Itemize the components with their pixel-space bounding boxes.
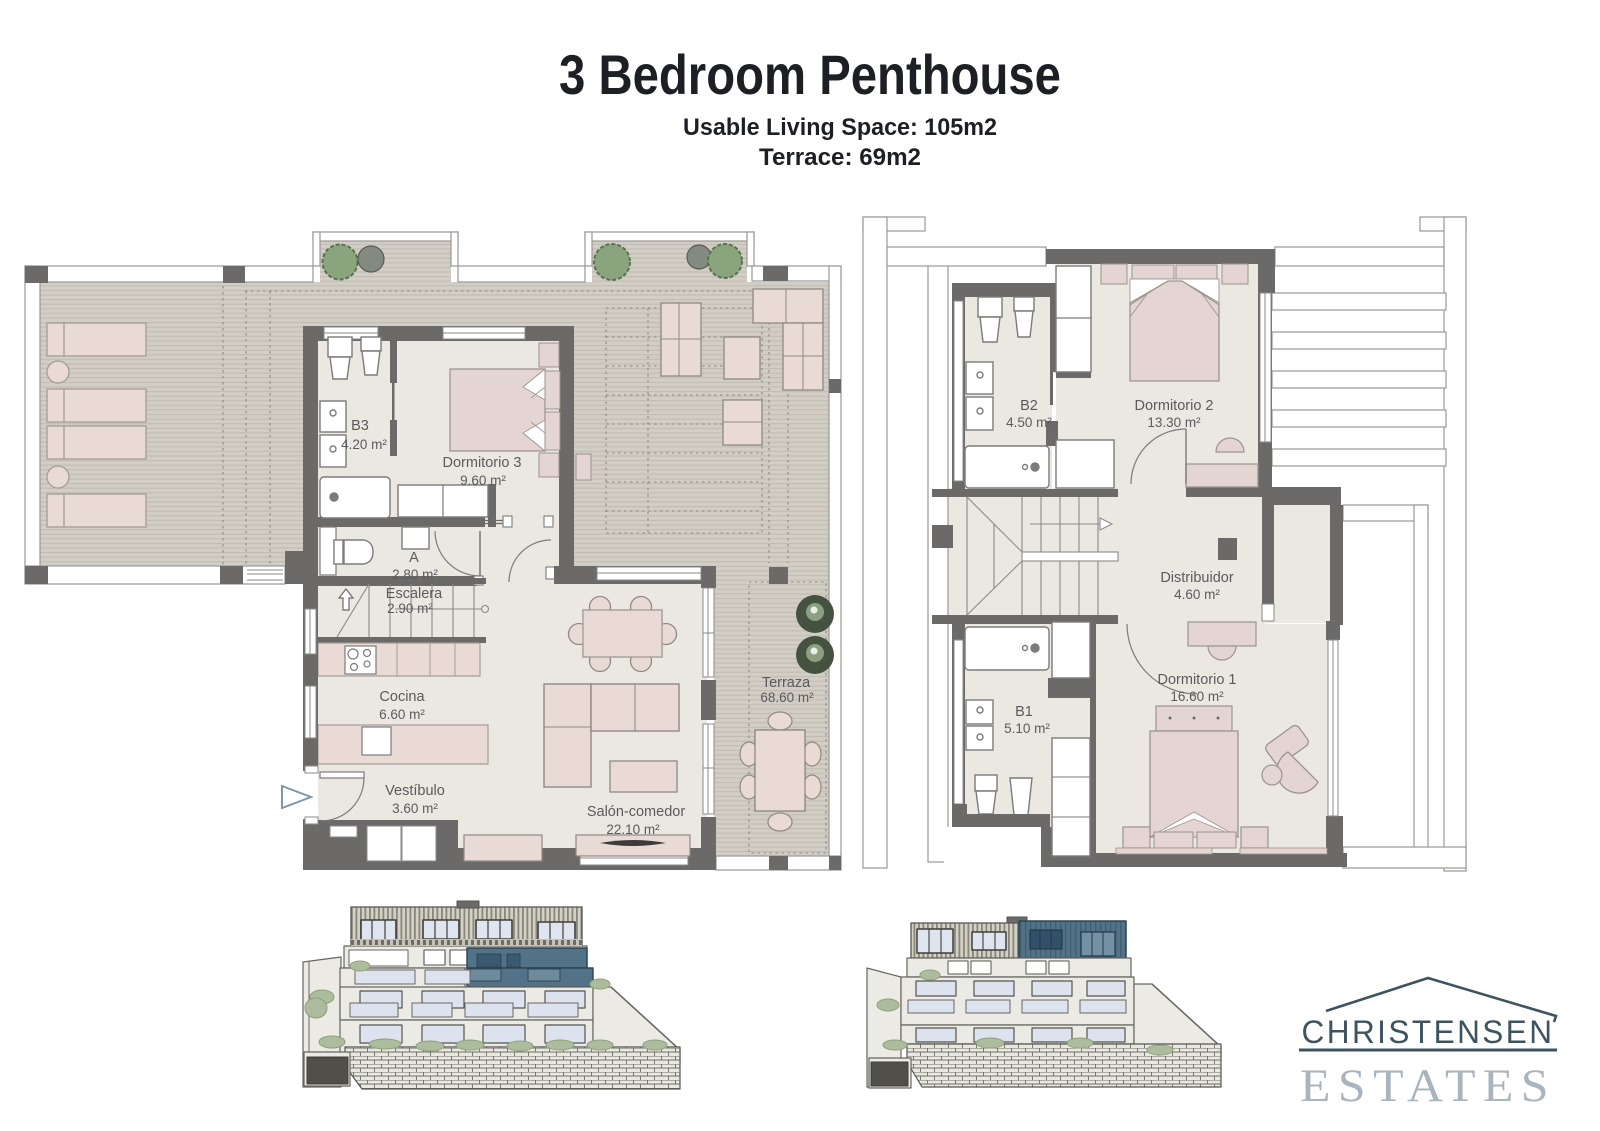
svg-text:Vestíbulo: Vestíbulo — [385, 783, 445, 799]
svg-text:4.20 m²: 4.20 m² — [341, 437, 387, 452]
svg-text:5.10 m²: 5.10 m² — [1004, 721, 1050, 736]
svg-text:6.60 m²: 6.60 m² — [379, 707, 425, 722]
svg-text:22.10 m²: 22.10 m² — [606, 822, 660, 837]
svg-text:Salón-comedor: Salón-comedor — [587, 804, 685, 820]
svg-text:3.60 m²: 3.60 m² — [392, 801, 438, 816]
svg-text:Cocina: Cocina — [379, 689, 425, 705]
svg-text:16.60 m²: 16.60 m² — [1170, 689, 1224, 704]
svg-text:13.30 m²: 13.30 m² — [1147, 415, 1201, 430]
svg-text:4.50 m²: 4.50 m² — [1006, 415, 1052, 430]
svg-text:B3: B3 — [351, 418, 369, 434]
svg-text:Terrace: 69m2: Terrace: 69m2 — [759, 144, 921, 171]
svg-text:9.60 m²: 9.60 m² — [460, 473, 506, 488]
svg-text:68.60 m²: 68.60 m² — [760, 690, 814, 705]
svg-text:Terraza: Terraza — [762, 675, 811, 691]
svg-text:ESTATES: ESTATES — [1300, 1060, 1556, 1112]
svg-text:B2: B2 — [1020, 398, 1038, 414]
svg-text:B1: B1 — [1015, 704, 1033, 720]
svg-text:Dormitorio 1: Dormitorio 1 — [1158, 672, 1237, 688]
svg-text:CHRISTENSEN: CHRISTENSEN — [1302, 1014, 1555, 1050]
svg-text:Escalera: Escalera — [386, 586, 443, 602]
svg-text:2.80 m²: 2.80 m² — [392, 567, 438, 582]
svg-text:Dormitorio 2: Dormitorio 2 — [1135, 398, 1214, 414]
svg-text:Distribuidor: Distribuidor — [1160, 570, 1233, 586]
svg-text:4.60 m²: 4.60 m² — [1174, 587, 1220, 602]
svg-text:2.90 m²: 2.90 m² — [387, 601, 433, 616]
svg-text:3 Bedroom Penthouse: 3 Bedroom Penthouse — [559, 43, 1061, 106]
svg-text:Dormitorio 3: Dormitorio 3 — [443, 455, 522, 471]
svg-text:Usable Living Space: 105m2: Usable Living Space: 105m2 — [683, 114, 997, 141]
svg-text:A: A — [409, 550, 419, 566]
